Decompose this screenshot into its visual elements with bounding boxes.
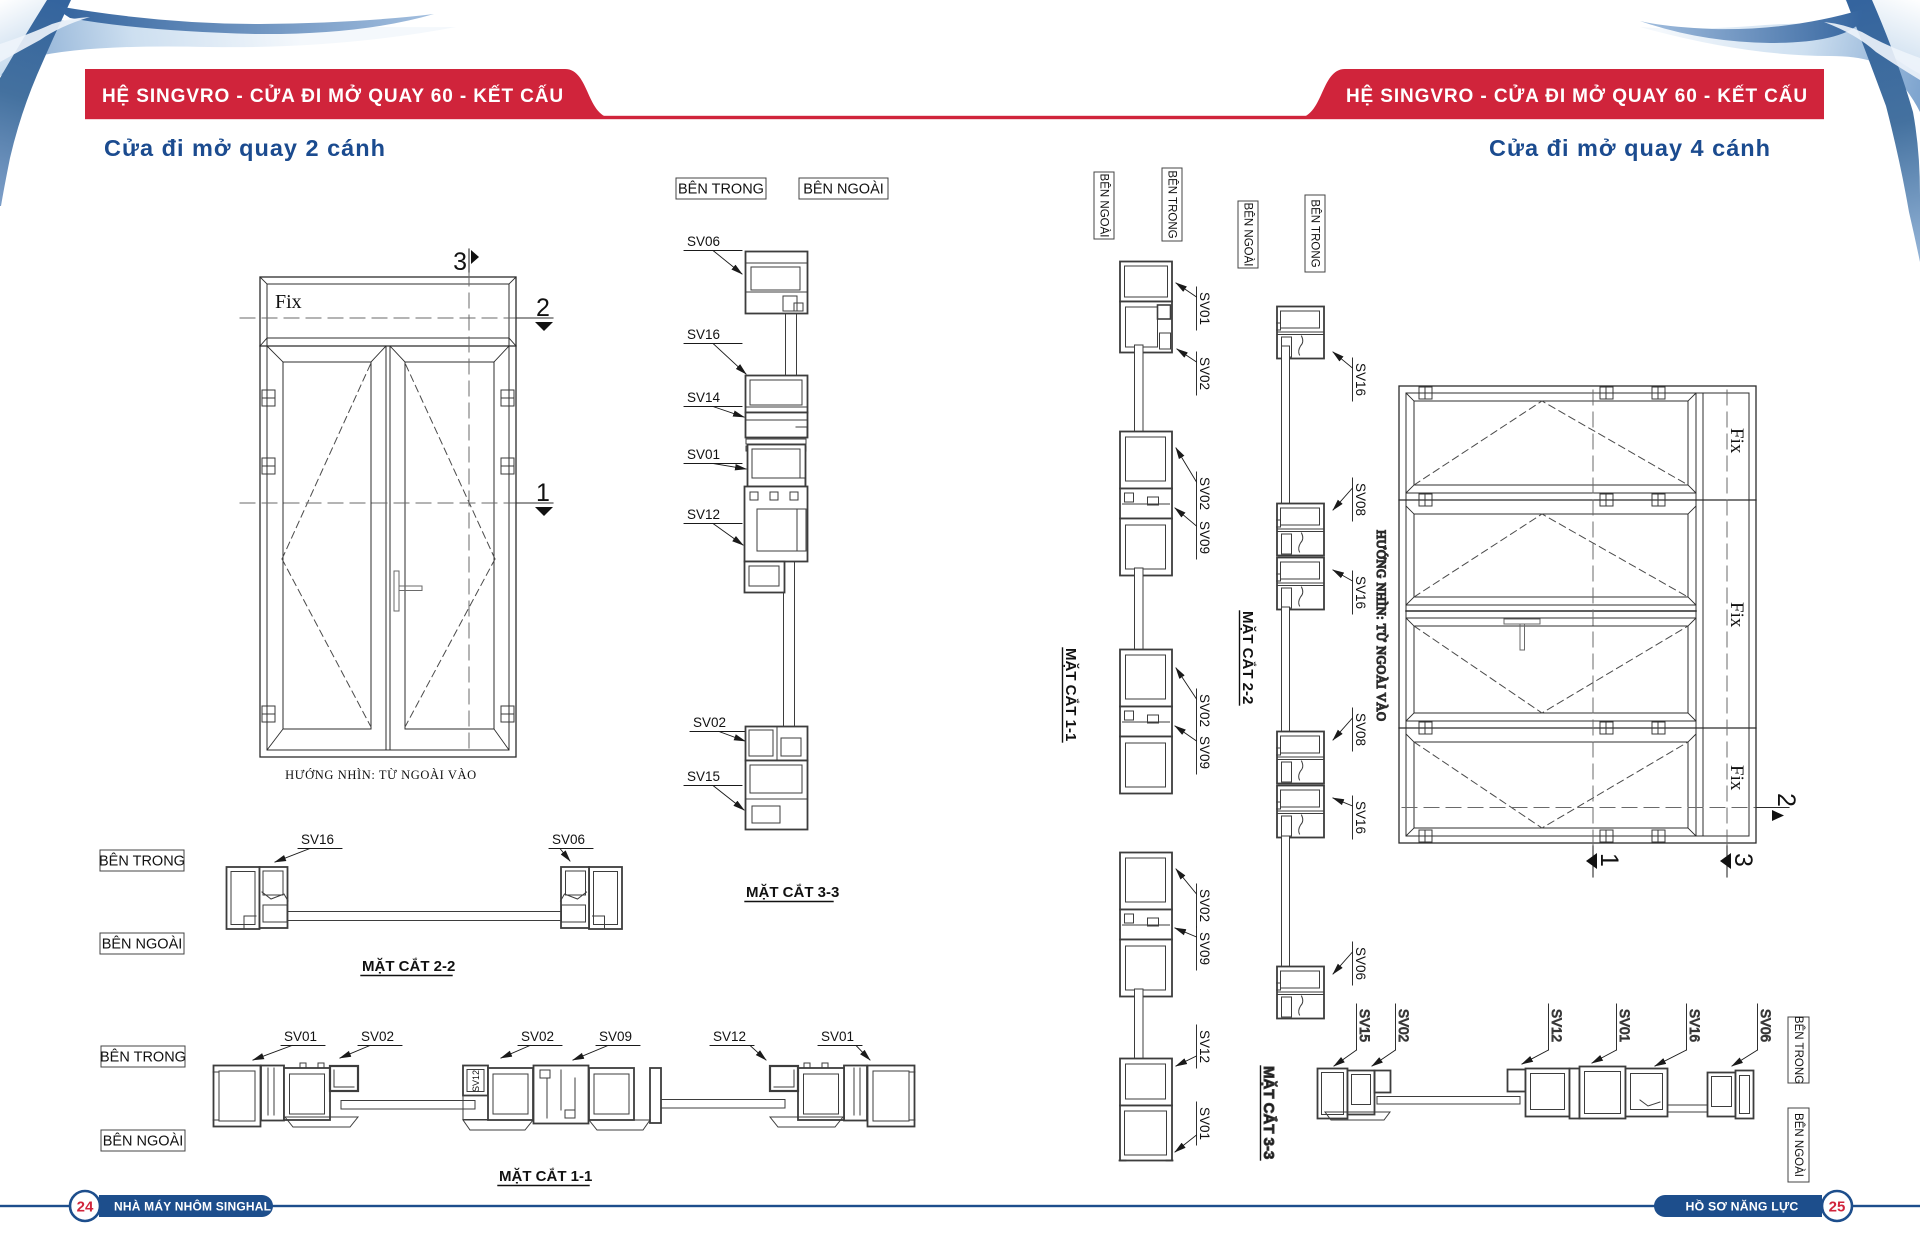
svg-text:HỆ SINGVRO - CỬA ĐI MỞ QUAY 60: HỆ SINGVRO - CỬA ĐI MỞ QUAY 60 - KẾT CẤU (102, 85, 564, 107)
svg-text:SV06: SV06 (552, 832, 585, 847)
svg-text:SV02: SV02 (1197, 889, 1212, 922)
svg-text:SV12: SV12 (1197, 1030, 1212, 1063)
svg-text:SV15: SV15 (1357, 1009, 1372, 1042)
svg-text:SV02: SV02 (1197, 477, 1212, 510)
svg-text:BÊN NGOÀI: BÊN NGOÀI (1792, 1113, 1805, 1177)
svg-text:Fix: Fix (1726, 765, 1747, 791)
svg-text:NHÀ MÁY NHÔM SINGHAL: NHÀ MÁY NHÔM SINGHAL (114, 1199, 271, 1214)
svg-text:MẶT CẮT 1-1: MẶT CẮT 1-1 (1062, 648, 1080, 741)
svg-text:SV01: SV01 (1197, 1107, 1212, 1140)
svg-text:SV12: SV12 (1549, 1009, 1564, 1042)
svg-text:SV16: SV16 (1353, 801, 1368, 834)
svg-text:1: 1 (1595, 853, 1623, 867)
svg-text:SV01: SV01 (284, 1029, 317, 1044)
svg-text:BÊN NGOÀI: BÊN NGOÀI (803, 181, 884, 198)
svg-text:Fix: Fix (275, 291, 302, 313)
svg-text:SV01: SV01 (1617, 1009, 1632, 1042)
svg-text:MẶT CẮT 1-1: MẶT CẮT 1-1 (499, 1167, 592, 1185)
svg-text:SV01: SV01 (1197, 292, 1212, 325)
svg-text:BÊN NGOÀI: BÊN NGOÀI (103, 1133, 184, 1150)
svg-text:SV16: SV16 (1353, 576, 1368, 609)
svg-text:BÊN TRONG: BÊN TRONG (678, 181, 764, 198)
svg-text:SV09: SV09 (1197, 736, 1212, 769)
svg-text:BÊN TRONG: BÊN TRONG (1309, 199, 1322, 267)
svg-text:BÊN TRONG: BÊN TRONG (1166, 170, 1179, 238)
svg-text:Cửa đi mở quay 2 cánh: Cửa đi mở quay 2 cánh (104, 135, 386, 161)
svg-text:BÊN NGOÀI: BÊN NGOÀI (1098, 174, 1111, 238)
svg-text:BÊN NGOÀI: BÊN NGOÀI (102, 936, 183, 953)
svg-text:SV08: SV08 (1353, 713, 1368, 746)
svg-text:SV02: SV02 (1197, 357, 1212, 390)
svg-text:SV16: SV16 (301, 832, 334, 847)
svg-text:SV16: SV16 (687, 327, 720, 342)
svg-text:MẶT CẮT 3-3: MẶT CẮT 3-3 (746, 883, 839, 901)
svg-text:3: 3 (453, 248, 467, 276)
svg-text:SV14: SV14 (687, 390, 721, 405)
svg-text:SV01: SV01 (687, 447, 720, 462)
svg-text:SV02: SV02 (1197, 694, 1212, 727)
svg-text:SV06: SV06 (1758, 1009, 1773, 1042)
svg-text:25: 25 (1829, 1199, 1846, 1216)
svg-text:SV02: SV02 (521, 1029, 554, 1044)
svg-text:2: 2 (1772, 793, 1800, 807)
svg-text:24: 24 (77, 1199, 94, 1216)
svg-text:SV09: SV09 (599, 1029, 632, 1044)
svg-text:BÊN TRONG: BÊN TRONG (1792, 1016, 1805, 1084)
svg-text:SV12: SV12 (713, 1029, 746, 1044)
svg-text:SV12: SV12 (471, 1070, 481, 1092)
svg-text:SV16: SV16 (1687, 1009, 1702, 1042)
svg-text:Fix: Fix (1726, 602, 1747, 628)
svg-text:3: 3 (1729, 853, 1757, 867)
svg-text:BÊN NGOÀI: BÊN NGOÀI (1242, 203, 1255, 267)
svg-text:HƯỚNG NHÌN: TỪ NGOÀI VÀO: HƯỚNG NHÌN: TỪ NGOÀI VÀO (285, 768, 477, 782)
svg-text:Cửa đi mở quay 4 cánh: Cửa đi mở quay 4 cánh (1489, 135, 1771, 161)
svg-text:SV09: SV09 (1197, 932, 1212, 965)
svg-text:SV09: SV09 (1197, 521, 1212, 554)
svg-text:SV02: SV02 (693, 715, 726, 730)
svg-text:SV08: SV08 (1353, 483, 1368, 516)
svg-text:SV15: SV15 (687, 769, 720, 784)
svg-text:MẶT CẮT 2-2: MẶT CẮT 2-2 (362, 957, 455, 975)
svg-text:SV01: SV01 (821, 1029, 854, 1044)
svg-text:2: 2 (536, 294, 550, 322)
svg-text:SV06: SV06 (687, 234, 720, 249)
svg-text:BÊN TRONG: BÊN TRONG (99, 853, 185, 870)
svg-text:MẶT CẮT 2-2: MẶT CẮT 2-2 (1239, 611, 1257, 704)
svg-text:HƯỚNG NHÌN: TỪ NGOÀI VÀO: HƯỚNG NHÌN: TỪ NGOÀI VÀO (1374, 530, 1388, 722)
svg-text:SV12: SV12 (687, 507, 720, 522)
svg-text:MẶT CẮT 3-3: MẶT CẮT 3-3 (1260, 1066, 1278, 1159)
svg-text:Fix: Fix (1726, 428, 1747, 454)
svg-text:BÊN TRONG: BÊN TRONG (100, 1049, 186, 1066)
svg-text:1: 1 (536, 479, 550, 507)
svg-text:SV06: SV06 (1353, 947, 1368, 980)
svg-text:HỆ SINGVRO - CỬA ĐI MỞ QUAY 60: HỆ SINGVRO - CỬA ĐI MỞ QUAY 60 - KẾT CẤU (1346, 85, 1808, 107)
svg-text:SV16: SV16 (1353, 363, 1368, 396)
svg-text:SV02: SV02 (361, 1029, 394, 1044)
svg-text:HỒ SƠ NĂNG LỰC: HỒ SƠ NĂNG LỰC (1686, 1199, 1799, 1214)
svg-text:SV02: SV02 (1396, 1009, 1411, 1042)
